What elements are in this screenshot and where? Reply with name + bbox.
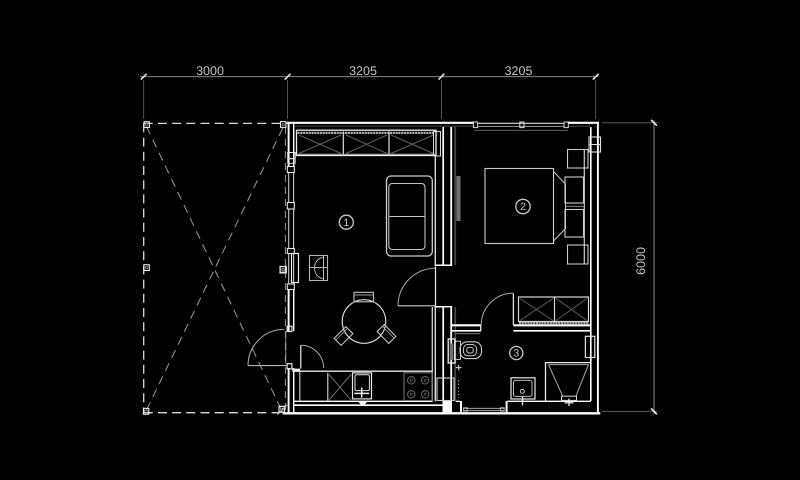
svg-text:3205: 3205 bbox=[505, 64, 533, 78]
svg-text:3205: 3205 bbox=[349, 64, 377, 78]
svg-text:3: 3 bbox=[513, 348, 519, 360]
svg-text:6000: 6000 bbox=[634, 247, 648, 275]
svg-text:3000: 3000 bbox=[196, 64, 224, 78]
svg-text:2: 2 bbox=[520, 201, 526, 213]
svg-text:1: 1 bbox=[343, 217, 349, 229]
